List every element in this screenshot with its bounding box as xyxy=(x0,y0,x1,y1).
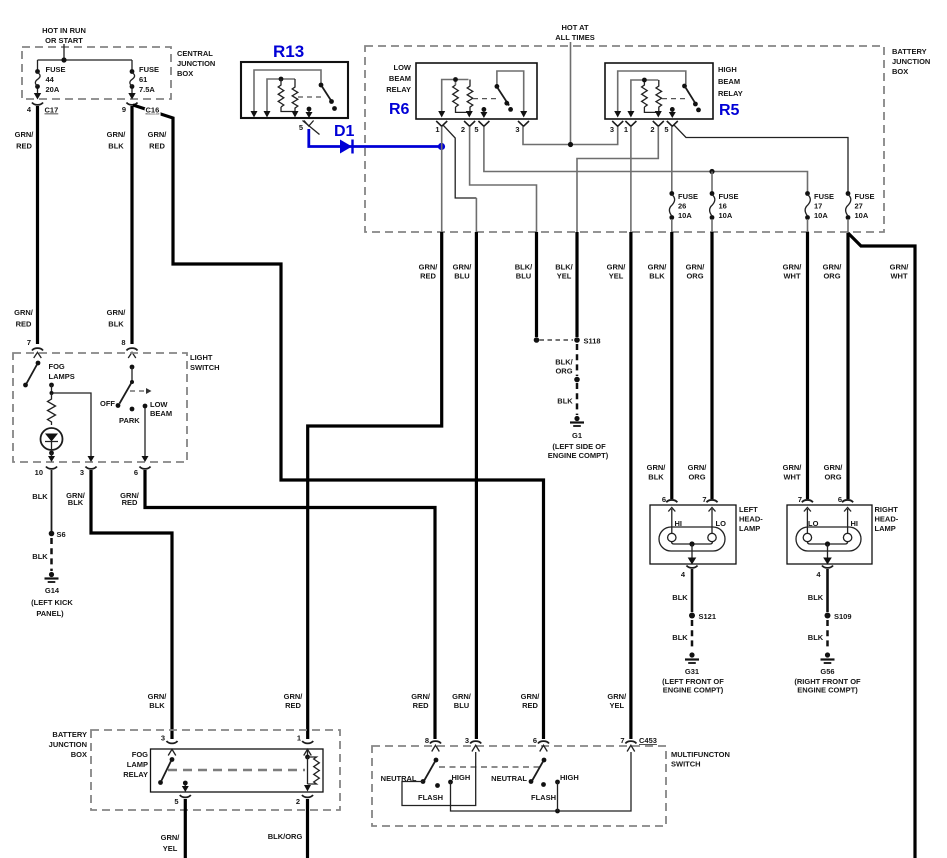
svg-text:LOW: LOW xyxy=(150,400,168,409)
svg-text:1: 1 xyxy=(297,734,301,743)
svg-text:ORG: ORG xyxy=(823,272,840,281)
svg-text:44: 44 xyxy=(46,75,55,84)
svg-text:D1: D1 xyxy=(334,123,355,140)
svg-text:YEL: YEL xyxy=(557,272,572,281)
svg-text:LAMP: LAMP xyxy=(739,524,760,533)
svg-text:BLK: BLK xyxy=(808,633,824,642)
svg-text:GRN/: GRN/ xyxy=(607,263,627,272)
svg-text:BLU: BLU xyxy=(454,272,469,281)
svg-text:GRN/: GRN/ xyxy=(783,263,803,272)
svg-text:ORG: ORG xyxy=(555,367,572,376)
svg-text:ENGINE COMPT): ENGINE COMPT) xyxy=(797,686,858,695)
svg-text:BLK: BLK xyxy=(32,552,48,561)
svg-text:BEAM: BEAM xyxy=(718,77,740,86)
svg-text:BLK: BLK xyxy=(68,498,84,507)
svg-text:17: 17 xyxy=(814,202,822,211)
svg-text:BLK/: BLK/ xyxy=(555,358,573,367)
svg-text:10A: 10A xyxy=(678,211,692,220)
svg-text:BEAM: BEAM xyxy=(150,409,172,418)
svg-text:6: 6 xyxy=(533,736,537,745)
svg-text:BOX: BOX xyxy=(177,69,193,78)
svg-text:8: 8 xyxy=(121,338,125,347)
svg-text:GRN/: GRN/ xyxy=(419,263,439,272)
svg-text:BLK/: BLK/ xyxy=(515,263,533,272)
svg-text:LAMP: LAMP xyxy=(875,524,896,533)
svg-text:LAMP: LAMP xyxy=(127,760,148,769)
svg-text:HIGH: HIGH xyxy=(560,773,579,782)
svg-text:FUSE: FUSE xyxy=(46,65,66,74)
svg-text:YEL: YEL xyxy=(610,701,625,710)
svg-text:RED: RED xyxy=(413,701,429,710)
svg-text:GRN/: GRN/ xyxy=(824,463,844,472)
svg-text:C16: C16 xyxy=(146,106,160,115)
svg-text:3: 3 xyxy=(80,468,84,477)
svg-text:10A: 10A xyxy=(814,211,828,220)
svg-text:RED: RED xyxy=(420,272,436,281)
svg-text:RELAY: RELAY xyxy=(386,85,411,94)
svg-text:SWITCH: SWITCH xyxy=(190,363,220,372)
svg-text:S109: S109 xyxy=(834,612,852,621)
svg-text:7: 7 xyxy=(620,736,624,745)
svg-text:7.5A: 7.5A xyxy=(139,85,155,94)
svg-text:BLK: BLK xyxy=(649,272,665,281)
svg-text:7: 7 xyxy=(27,338,31,347)
svg-text:FUSE: FUSE xyxy=(814,192,834,201)
svg-text:S6: S6 xyxy=(57,530,66,539)
svg-text:OFF: OFF xyxy=(100,399,115,408)
svg-text:2: 2 xyxy=(461,125,465,134)
svg-text:GRN/: GRN/ xyxy=(107,308,127,317)
svg-text:WHT: WHT xyxy=(890,272,907,281)
svg-text:27: 27 xyxy=(855,202,863,211)
svg-text:JUNCTION: JUNCTION xyxy=(49,740,87,749)
svg-text:BATTERY: BATTERY xyxy=(52,730,87,739)
svg-text:RED: RED xyxy=(16,142,32,151)
svg-text:BLK: BLK xyxy=(32,492,48,501)
svg-text:CENTRAL: CENTRAL xyxy=(177,49,213,58)
svg-text:3: 3 xyxy=(515,125,519,134)
svg-text:ALL TIMES: ALL TIMES xyxy=(555,33,594,42)
svg-text:S121: S121 xyxy=(699,612,717,621)
svg-text:RELAY: RELAY xyxy=(718,89,743,98)
svg-text:BLK: BLK xyxy=(108,142,124,151)
svg-text:61: 61 xyxy=(139,75,147,84)
svg-text:HIGH: HIGH xyxy=(718,65,737,74)
svg-text:G56: G56 xyxy=(820,667,834,676)
svg-text:BLK: BLK xyxy=(808,593,824,602)
svg-text:BLK: BLK xyxy=(648,473,664,482)
svg-text:5: 5 xyxy=(174,797,178,806)
svg-text:BOX: BOX xyxy=(892,67,908,76)
svg-text:6: 6 xyxy=(662,495,666,504)
svg-text:5: 5 xyxy=(299,123,303,132)
svg-text:GRN/: GRN/ xyxy=(890,263,910,272)
svg-text:3: 3 xyxy=(161,734,165,743)
svg-text:FOG: FOG xyxy=(49,362,65,371)
svg-text:FUSE: FUSE xyxy=(855,192,875,201)
svg-text:1: 1 xyxy=(435,125,439,134)
svg-text:RED: RED xyxy=(522,701,538,710)
svg-text:5: 5 xyxy=(474,125,478,134)
svg-text:G31: G31 xyxy=(685,667,699,676)
svg-text:BATTERY: BATTERY xyxy=(892,47,927,56)
svg-text:FLASH: FLASH xyxy=(531,793,556,802)
svg-text:6: 6 xyxy=(134,468,138,477)
svg-text:OR START: OR START xyxy=(45,36,83,45)
svg-text:FUSE: FUSE xyxy=(678,192,698,201)
svg-text:LOW: LOW xyxy=(394,63,412,72)
svg-text:JUNCTION: JUNCTION xyxy=(177,59,215,68)
svg-text:FUSE: FUSE xyxy=(139,65,159,74)
svg-text:ENGINE COMPT): ENGINE COMPT) xyxy=(663,686,724,695)
svg-text:GRN/: GRN/ xyxy=(411,692,431,701)
svg-text:PARK: PARK xyxy=(119,416,140,425)
svg-text:BLK: BLK xyxy=(672,633,688,642)
svg-text:HOT AT: HOT AT xyxy=(561,23,588,32)
svg-text:GRN/: GRN/ xyxy=(607,692,627,701)
svg-text:RIGHT: RIGHT xyxy=(875,505,899,514)
svg-text:MULTIFUNCTON: MULTIFUNCTON xyxy=(671,750,730,759)
svg-text:GRN/: GRN/ xyxy=(783,463,803,472)
svg-text:1: 1 xyxy=(624,125,628,134)
svg-text:BLK: BLK xyxy=(149,701,165,710)
svg-text:GRN/: GRN/ xyxy=(284,692,304,701)
svg-text:S118: S118 xyxy=(584,337,601,346)
svg-text:NEUTRAL: NEUTRAL xyxy=(491,774,527,783)
svg-text:FOG: FOG xyxy=(132,750,148,759)
svg-text:FUSE: FUSE xyxy=(719,192,739,201)
svg-text:GRN/: GRN/ xyxy=(521,692,541,701)
svg-text:R6: R6 xyxy=(389,101,410,118)
svg-text:(LEFT SIDE OF: (LEFT SIDE OF xyxy=(552,442,606,451)
svg-text:RED: RED xyxy=(16,320,32,329)
svg-text:8: 8 xyxy=(425,736,429,745)
svg-text:5: 5 xyxy=(664,125,668,134)
svg-text:BEAM: BEAM xyxy=(389,74,411,83)
svg-text:C453: C453 xyxy=(639,736,657,745)
svg-text:JUNCTION: JUNCTION xyxy=(892,57,930,66)
svg-text:GRN/: GRN/ xyxy=(148,130,168,139)
svg-text:GRN/: GRN/ xyxy=(686,263,706,272)
svg-text:BLK: BLK xyxy=(557,397,573,406)
svg-text:GRN/: GRN/ xyxy=(148,692,168,701)
svg-text:R5: R5 xyxy=(719,102,740,119)
svg-text:R13: R13 xyxy=(273,42,304,61)
svg-text:WHT: WHT xyxy=(783,272,800,281)
svg-text:HEAD-: HEAD- xyxy=(739,515,763,524)
svg-text:GRN/: GRN/ xyxy=(823,263,843,272)
svg-text:FLASH: FLASH xyxy=(418,793,443,802)
svg-text:ENGINE COMPT): ENGINE COMPT) xyxy=(548,451,609,460)
svg-text:ORG: ORG xyxy=(824,473,841,482)
svg-text:LEFT: LEFT xyxy=(739,505,758,514)
svg-text:(LEFT KICK: (LEFT KICK xyxy=(31,598,73,607)
svg-text:C17: C17 xyxy=(45,106,59,115)
svg-text:HIGH: HIGH xyxy=(452,773,471,782)
svg-text:HOT IN RUN: HOT IN RUN xyxy=(42,26,86,35)
svg-text:3: 3 xyxy=(610,125,614,134)
svg-text:BLK/: BLK/ xyxy=(555,263,573,272)
svg-text:BLK: BLK xyxy=(108,320,124,329)
svg-text:PANEL): PANEL) xyxy=(36,609,64,618)
svg-text:RELAY: RELAY xyxy=(123,770,148,779)
svg-text:RED: RED xyxy=(149,142,165,151)
svg-text:GRN/: GRN/ xyxy=(647,463,667,472)
svg-text:GRN/: GRN/ xyxy=(15,130,35,139)
svg-text:RED: RED xyxy=(285,701,301,710)
svg-text:GRN/: GRN/ xyxy=(14,308,34,317)
svg-text:BLK/ORG: BLK/ORG xyxy=(268,832,303,841)
svg-text:2: 2 xyxy=(296,797,300,806)
svg-text:LIGHT: LIGHT xyxy=(190,353,213,362)
svg-text:GRN/: GRN/ xyxy=(648,263,668,272)
svg-text:10A: 10A xyxy=(855,211,869,220)
svg-text:3: 3 xyxy=(465,736,469,745)
svg-text:2: 2 xyxy=(650,125,654,134)
svg-text:HEAD-: HEAD- xyxy=(875,515,899,524)
svg-text:SWITCH: SWITCH xyxy=(671,760,701,769)
svg-text:LO: LO xyxy=(716,519,727,528)
svg-text:6: 6 xyxy=(838,495,842,504)
svg-text:GRN/: GRN/ xyxy=(161,833,181,842)
svg-text:20A: 20A xyxy=(46,85,60,94)
svg-text:BLU: BLU xyxy=(516,272,531,281)
svg-text:BOX: BOX xyxy=(71,750,87,759)
svg-text:GRN/: GRN/ xyxy=(453,263,473,272)
svg-text:ORG: ORG xyxy=(686,272,703,281)
svg-text:YEL: YEL xyxy=(609,272,624,281)
svg-text:WHT: WHT xyxy=(783,473,800,482)
svg-text:BLU: BLU xyxy=(454,701,469,710)
svg-text:RED: RED xyxy=(122,498,138,507)
svg-text:7: 7 xyxy=(798,495,802,504)
svg-text:GRN/: GRN/ xyxy=(688,463,708,472)
svg-text:10: 10 xyxy=(35,468,43,477)
svg-text:9: 9 xyxy=(122,105,126,114)
svg-text:G14: G14 xyxy=(45,586,60,595)
svg-text:BLK: BLK xyxy=(672,593,688,602)
svg-text:YEL: YEL xyxy=(163,844,178,853)
svg-text:7: 7 xyxy=(702,495,706,504)
svg-text:10A: 10A xyxy=(719,211,733,220)
svg-text:ORG: ORG xyxy=(688,473,705,482)
svg-text:26: 26 xyxy=(678,202,686,211)
svg-text:GRN/: GRN/ xyxy=(452,692,472,701)
svg-text:GRN/: GRN/ xyxy=(107,130,127,139)
svg-text:LAMPS: LAMPS xyxy=(49,372,75,381)
svg-text:G1: G1 xyxy=(572,431,582,440)
svg-text:16: 16 xyxy=(719,202,727,211)
